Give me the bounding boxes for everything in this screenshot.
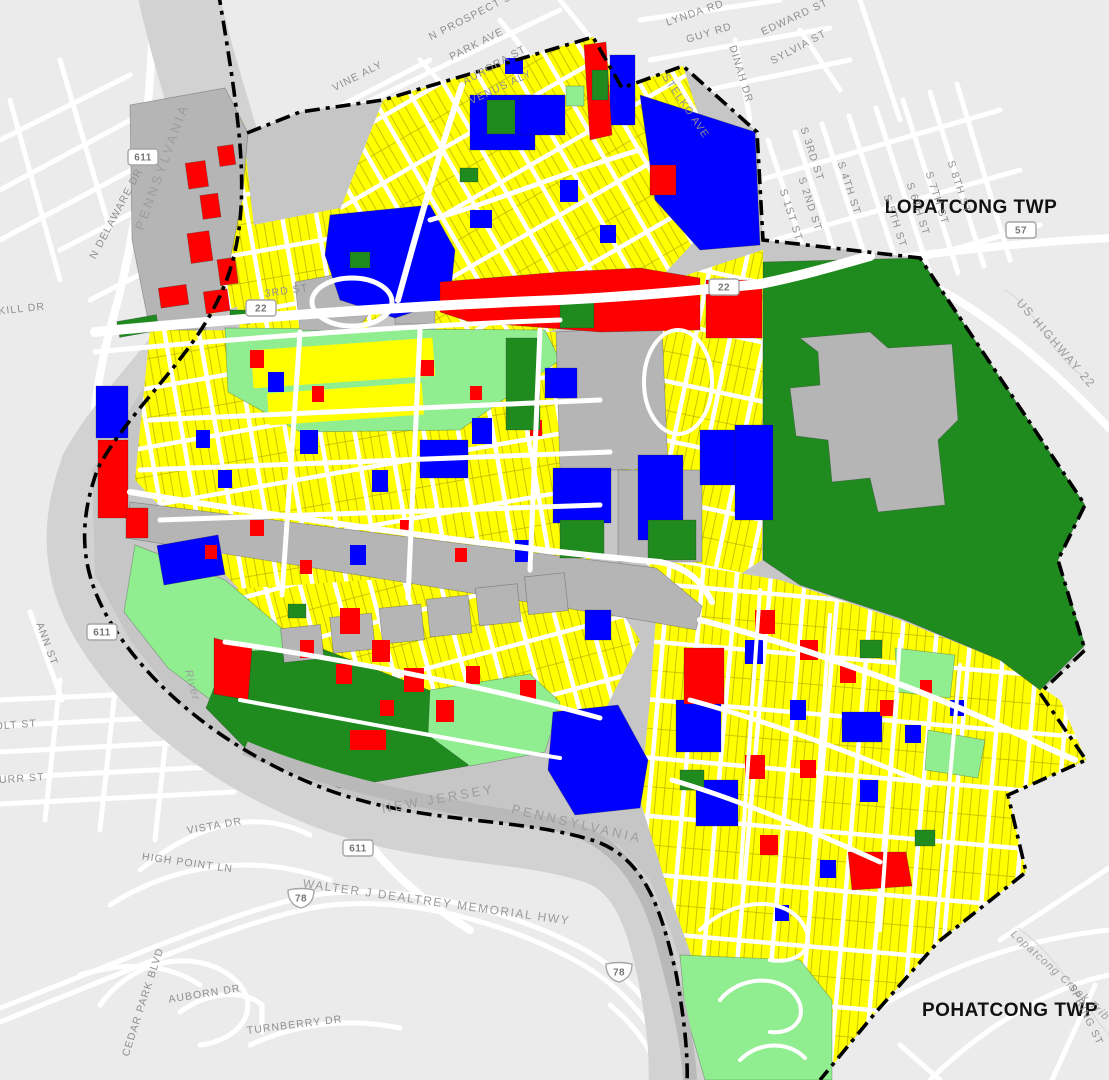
route-shield-611: 611 <box>87 624 117 640</box>
map-canvas: 6116116112222577878 LOPATCONG TWPPOHATCO… <box>0 0 1109 1080</box>
shield-number: 611 <box>93 628 111 639</box>
shield-number: 611 <box>349 844 367 855</box>
zoning-map: 6116116112222577878 LOPATCONG TWPPOHATCO… <box>0 0 1109 1080</box>
route-shield-22: 22 <box>709 279 739 295</box>
shield-number: 57 <box>1015 226 1027 237</box>
route-shield-22: 22 <box>246 300 276 316</box>
shield-number: 22 <box>255 304 267 315</box>
shield-number: 22 <box>718 283 730 294</box>
shield-number: 78 <box>613 968 625 979</box>
route-shield-611: 611 <box>128 149 158 165</box>
route-shield-57: 57 <box>1006 222 1036 238</box>
shield-number: 611 <box>134 153 152 164</box>
shield-number: 78 <box>295 894 307 905</box>
label-pohatcong-twp: POHATCONG TWP <box>922 1000 1098 1021</box>
route-shield-611: 611 <box>343 840 373 856</box>
